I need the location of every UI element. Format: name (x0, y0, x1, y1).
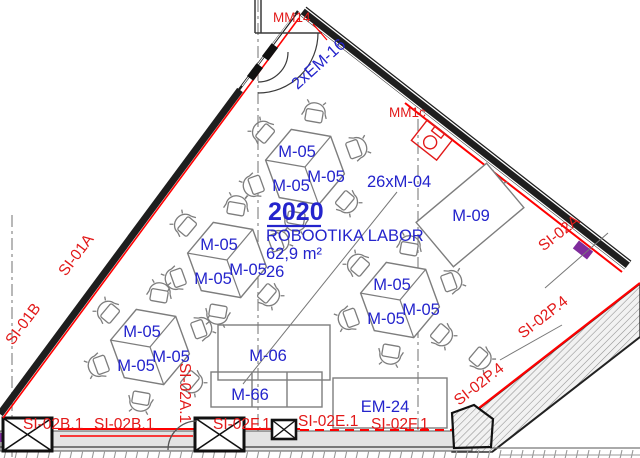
door-label-mm1c: MM1c (389, 105, 426, 120)
floor-plan: M-05 M-05 M-05 M-05 M-05 M-05 M-05 M-05 … (0, 0, 640, 458)
table-label-m06: M-06 (249, 347, 287, 365)
table-label-m05: M-05 (278, 143, 316, 161)
door-label-em16: 2xEM-16 (288, 36, 349, 94)
safety-label-si02f1-a: SI-02F.1 (213, 416, 271, 433)
table-label-m05: M-05 (229, 261, 267, 279)
table-label-m05: M-05 (272, 177, 310, 195)
furniture-count-note: 26xM-04 (367, 173, 431, 191)
table-cluster-3 (83, 279, 217, 415)
equipment-label-em24: EM-24 (361, 398, 410, 416)
table-label-m05: M-05 (194, 270, 232, 288)
table-label-m09: M-09 (452, 207, 490, 225)
table-label-m05: M-05 (307, 168, 345, 186)
door-label-mm14: MM14 (273, 10, 311, 25)
safety-label-si01a: SI-01A (55, 231, 97, 280)
safety-label-si01b: SI-01B (2, 300, 44, 348)
table-label-m05: M-05 (373, 276, 411, 294)
room-name: ROBOOTIKA LABOR (266, 227, 424, 245)
table-label-m05: M-05 (402, 301, 440, 319)
floor-plan-drawing: M-05 M-05 M-05 M-05 M-05 M-05 M-05 M-05 … (0, 0, 640, 458)
table-label-m05: M-05 (200, 236, 238, 254)
safety-label-si02p4-outer: SI-02P.4 (515, 293, 572, 343)
safety-label-si02a1: SI-02A.1 (176, 363, 193, 423)
safety-label-si02b1-b: SI-02B.1 (94, 416, 154, 433)
column-small (272, 420, 296, 439)
room-number: 2020 (268, 198, 324, 226)
purple-marker-wall (573, 241, 593, 260)
table-label-m05: M-05 (117, 357, 155, 375)
safety-label-si02f1-b: SI-02F.1 (371, 416, 429, 433)
bottom-wall (0, 429, 640, 458)
wall-hatch-ticks (0, 450, 640, 458)
safety-label-si02b1-a: SI-02B.1 (23, 416, 83, 433)
safety-label-si02e1: SI-02E.1 (298, 413, 358, 430)
table-label-m05: M-05 (367, 310, 405, 328)
room-area: 62,9 m² (266, 245, 322, 263)
table-label-m05: M-05 (123, 323, 161, 341)
room-capacity: 26 (266, 263, 284, 281)
cabinet-label-m66: M-66 (231, 386, 269, 404)
